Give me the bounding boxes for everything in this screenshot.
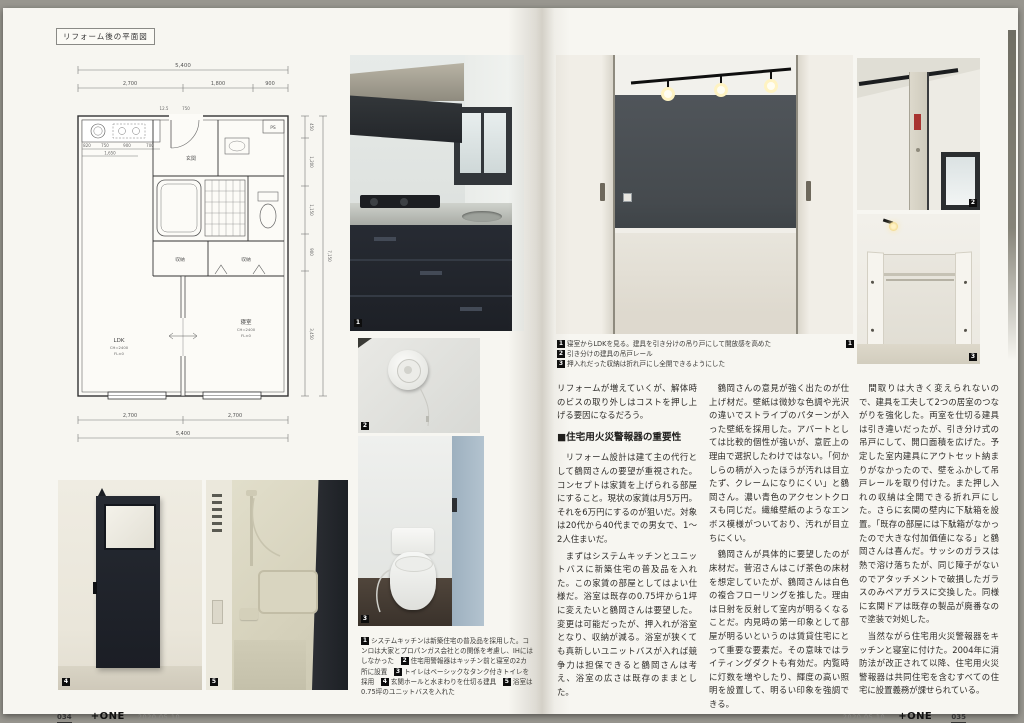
hanger-pipe (886, 279, 954, 281)
label-genkan: 玄関 (186, 155, 196, 162)
dim-t2: 1,800 (211, 81, 225, 87)
caption-text-4: 玄関ホールと水まわりを仕切る建具 (391, 678, 503, 686)
photo-marker-main-1: 1 (846, 340, 854, 348)
article-column-1: リフォームが増えていくが、解体時のビスの取り外しはコストを押し上げる要因になるだ… (557, 382, 697, 702)
right-caption-3: 3押入れだった収納は折れ戸にし全開できるようにした (557, 359, 843, 369)
shower-head-icon (246, 490, 257, 496)
dim-r1: 450 (309, 123, 314, 131)
right-caption-2: 2引き分けの建具の吊戸レール (557, 349, 843, 359)
article-c2p2: 鶴岡さんが具体的に要望したのが床材だ。菅沼さんはこげ茶色の床材を想定していたが、… (709, 548, 849, 711)
photo-door-rail: 2 (857, 58, 980, 210)
issue-date-left: 2020.05.10 (138, 713, 180, 721)
article-column-2: 鶴岡さんの意見が強く出たのが仕上げ材だ。壁紙は微妙な色調や光沢の違いでストライプ… (709, 382, 849, 715)
label-bed-fl: FL±0 (241, 333, 251, 338)
door-pull-left (600, 183, 605, 201)
plan-title-label: リフォーム後の平面図 (56, 28, 155, 45)
dim-k1: 750 (101, 143, 109, 148)
caption-badge-4: 4 (381, 678, 389, 686)
dim-r3: 1,150 (309, 204, 314, 216)
dark-door (96, 496, 160, 668)
drawer-line (350, 295, 512, 297)
toilet-hose (372, 566, 394, 616)
hall-floor (58, 666, 202, 690)
toilet-seat (395, 556, 433, 572)
caption-badge-1: 1 (361, 637, 369, 645)
label-ps: PS (270, 125, 276, 131)
range-hood-icon (350, 95, 462, 143)
photo-closet: 3 (857, 214, 980, 364)
dim-top-total: 5,400 (175, 63, 191, 69)
dim-b2: 2,700 (228, 413, 242, 419)
alarm-pull-string (358, 338, 480, 433)
magazine-logo-left: +ONE (91, 711, 125, 722)
page-number-right: 035 (951, 713, 966, 723)
folding-door-right (955, 251, 972, 350)
drawer-handle (420, 271, 442, 275)
kitchen-cabinets (350, 225, 512, 331)
bath-stool (240, 608, 258, 620)
plan-dim-bottom (78, 416, 288, 442)
rcaption-text-3: 押入れだった収納は折れ戸にし全開できるようにした (567, 360, 725, 368)
article-c2p1: 鶴岡さんの意見が強く出たのが仕上げ材だ。壁紙は微妙な色調や光沢の違いでストライプ… (709, 382, 849, 545)
burner-icon (370, 198, 378, 206)
photo-toilet: 3 (358, 436, 484, 626)
label-ldk: LDK (114, 338, 125, 344)
warning-stickers (212, 494, 222, 534)
floor-plan: 5,400 2,700 1,800 900 820 750 900 700 1,… (53, 46, 348, 471)
dim-k2: 900 (123, 143, 131, 148)
door-knob (871, 329, 874, 332)
dim-r4: 900 (309, 248, 314, 256)
door-window-pane (104, 504, 156, 550)
door-closer (98, 488, 106, 496)
photo-hall-door: 4 (58, 480, 202, 690)
plan-dim-top (78, 66, 288, 92)
door-knob (964, 329, 967, 332)
door-knob (964, 281, 967, 284)
article-p1: リフォーム設計は建て主の代行として鶴岡さんの要望が重視された。コンセプトは家賃を… (557, 451, 697, 546)
red-label-sticker (914, 114, 921, 130)
closet-shelf (882, 273, 958, 276)
label-bed-ch: CH=2400 (237, 327, 256, 332)
dim-bottom-total: 5,400 (176, 431, 190, 437)
dim-ktotal: 1,650 (104, 151, 116, 156)
right-captions: 1寝室からLDKを見る。建具を引き分けの吊り戸にして開放感を高めた 2引き分けの… (557, 339, 843, 370)
dim-t1: 2,700 (123, 81, 137, 87)
photo-marker-1: 1 (354, 319, 362, 327)
article-c3p1: 間取りは大きく変えられないので、建具を工夫して2つの居室のつながりを強化した。両… (859, 382, 999, 627)
sliding-door-right (796, 55, 853, 334)
label-closet1: 収納 (175, 256, 185, 263)
caption-badge-2: 2 (401, 657, 409, 665)
photo-marker-4: 4 (62, 678, 70, 686)
footer-right: 2020.05.10 +ONE 035 (843, 704, 966, 723)
magazine-spread: リフォーム後の平面図 5,400 2,700 1,800 900 820 750… (3, 8, 1018, 714)
white-floor (611, 233, 797, 334)
door-hinge (452, 498, 457, 512)
dim-right-total: 7,150 (327, 250, 332, 262)
right-caption-1: 1寝室からLDKを見る。建具を引き分けの吊り戸にして開放感を高めた (557, 339, 843, 349)
kitchen-window-frame (454, 107, 512, 185)
label-closet2: 収納 (241, 256, 251, 263)
photo-unit-bath: 5 (206, 480, 348, 690)
scan-edge-sliver (1008, 30, 1016, 360)
burner-icon (400, 198, 408, 206)
folding-door-left (867, 251, 884, 350)
dim-t3: 900 (265, 81, 275, 87)
dim-e2: 750 (182, 106, 190, 111)
dim-r5: 3,450 (309, 328, 314, 340)
article-p2: まずはシステムキッチンとユニットバスに新築住宅の普及品を入れた。この家賃の部屋と… (557, 550, 697, 700)
door-handle (93, 582, 97, 594)
article-c3p2: 当然ながら住宅用火災警報器をキッチンと寝室に付けた。2004年に消防法が改正され… (859, 630, 999, 698)
article-column-3: 間取りは大きく変えられないので、建具を工夫して2つの居室のつながりを強化した。両… (859, 382, 999, 701)
photo-marker-3: 3 (361, 615, 369, 623)
ceiling-spot-light (889, 222, 898, 231)
photo-marker-5: 5 (210, 678, 218, 686)
bathtub-edge (258, 570, 318, 614)
dim-b1: 2,700 (123, 413, 137, 419)
photo-kitchen: 1 (350, 55, 524, 331)
door-knob (871, 281, 874, 284)
toilet-bowl (390, 552, 436, 610)
photo-marker-rail-2: 2 (969, 199, 977, 207)
caption-badge-3: 3 (394, 668, 402, 676)
door-screw (916, 148, 920, 152)
footer-left: 034 +ONE 2020.05.10 (57, 704, 180, 723)
article-heading: ■住宅用火災警報器の重要性 (557, 430, 697, 446)
closet-floor (857, 344, 980, 364)
toilet-door (452, 436, 484, 626)
shower-hose (246, 498, 296, 578)
accent-wall (611, 95, 797, 230)
dim-e1: 12.5 (160, 106, 169, 111)
issue-date-right: 2020.05.10 (843, 713, 885, 721)
door-pull-right (806, 181, 811, 201)
photo-ldk-room (556, 55, 853, 334)
drawer-handle (460, 307, 482, 311)
toilet-tank (392, 528, 434, 554)
kitchen-sink (462, 211, 502, 222)
photo-marker-closet-3: 3 (969, 353, 977, 361)
drawer-line (350, 259, 512, 261)
range-hood-top (350, 63, 464, 101)
kitchen-window-mullion (481, 113, 484, 173)
drawer-handle (374, 237, 396, 241)
closet-interior (881, 254, 959, 346)
label-ldk-ch: CH=2400 (110, 345, 129, 350)
magazine-logo-right: +ONE (898, 711, 932, 722)
label-bedroom: 寝室 (240, 318, 252, 326)
rcaption-text-2: 引き分けの建具の吊戸レール (567, 350, 653, 358)
rcaption-text-1: 寝室からLDKを見る。建具を引き分けの吊り戸にして開放感を高めた (567, 340, 771, 348)
dim-r2: 1,200 (309, 156, 314, 168)
photo-fire-alarm: 2 (358, 338, 480, 433)
dim-k0: 820 (83, 143, 91, 148)
track-lighting (616, 61, 796, 106)
page-gutter-shadow (508, 8, 570, 714)
photo-marker-2: 2 (361, 422, 369, 430)
bath-floor (234, 640, 306, 690)
wall-outlet (623, 193, 632, 202)
rail-window-glass (946, 157, 975, 205)
gas-cooktop (360, 195, 440, 208)
label-ldk-fl: FL±0 (114, 351, 124, 356)
door-edge (909, 72, 929, 210)
bath-door-frame (206, 480, 232, 690)
article-p0: リフォームが増えていくが、解体時のビスの取り外しはコストを押し上げる要因になるだ… (557, 382, 697, 423)
page-number-left: 034 (57, 713, 72, 723)
sticker-label (212, 600, 223, 624)
